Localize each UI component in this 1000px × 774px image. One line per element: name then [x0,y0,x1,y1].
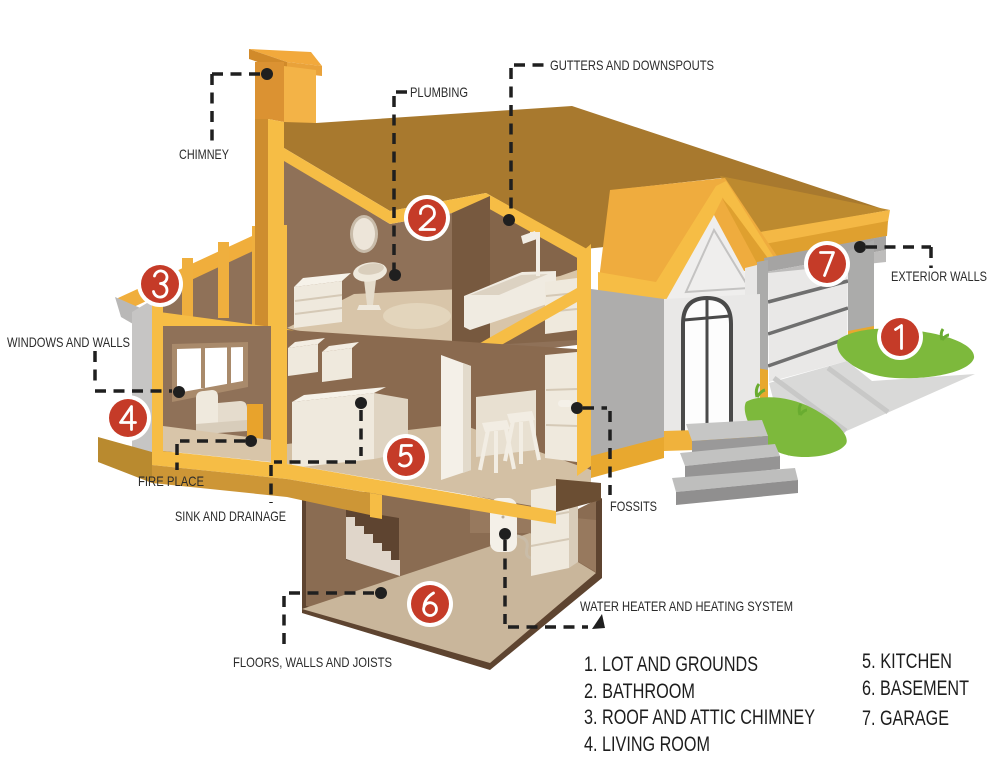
svg-text:WATER HEATER AND HEATING SYSTE: WATER HEATER AND HEATING SYSTEM [580,598,793,614]
svg-text:FLOORS, WALLS AND JOISTS: FLOORS, WALLS AND JOISTS [233,654,392,670]
svg-text:EXTERIOR WALLS: EXTERIOR WALLS [891,268,987,284]
svg-text:CHIMNEY: CHIMNEY [179,146,230,162]
svg-text:2. BATHROOM: 2. BATHROOM [584,680,695,703]
svg-text:1. LOT AND GROUNDS: 1. LOT AND GROUNDS [584,653,758,676]
svg-text:6. BASEMENT: 6. BASEMENT [862,677,969,700]
svg-text:4. LIVING ROOM: 4. LIVING ROOM [584,733,710,756]
svg-text:GUTTERS AND DOWNSPOUTS: GUTTERS AND DOWNSPOUTS [550,57,714,73]
svg-text:FOSSITS: FOSSITS [610,498,657,514]
svg-text:SINK AND DRAINAGE: SINK AND DRAINAGE [175,508,286,524]
svg-text:PLUMBING: PLUMBING [410,84,468,100]
svg-text:5. KITCHEN: 5. KITCHEN [862,650,952,673]
svg-text:7. GARAGE: 7. GARAGE [862,707,949,730]
svg-text:WINDOWS AND WALLS: WINDOWS AND WALLS [7,334,130,350]
svg-text:3. ROOF AND ATTIC CHIMNEY: 3. ROOF AND ATTIC CHIMNEY [584,706,815,729]
svg-text:FIRE PLACE: FIRE PLACE [138,473,204,489]
